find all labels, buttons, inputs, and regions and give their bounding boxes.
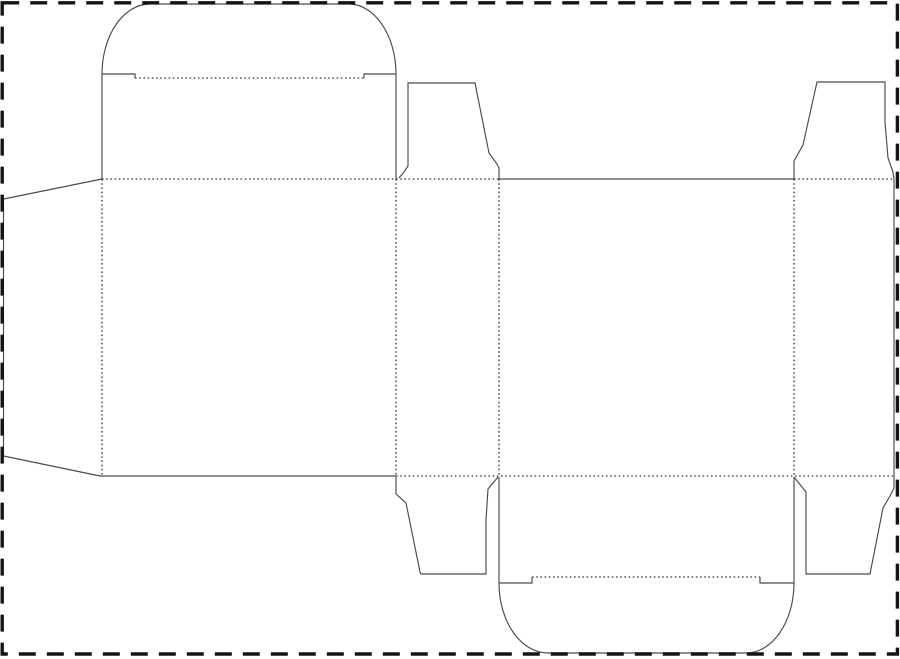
fold-lines <box>102 78 893 577</box>
artboard-dashed-border <box>2 3 897 654</box>
box-dieline-drawing <box>0 0 900 659</box>
top-tuck-notch-right <box>364 74 396 78</box>
top-dust-flap-right-outline <box>794 82 894 179</box>
dieline-canvas <box>0 0 900 659</box>
top-tuck-notch-left <box>102 74 135 78</box>
bottom-dust-flap-left-outline <box>396 477 498 574</box>
top-dust-flap-left-outline <box>399 83 499 179</box>
artboard-border-group <box>2 3 897 654</box>
top-tuck-flap-outline <box>102 4 396 179</box>
glue-flap-outline <box>4 179 103 476</box>
bottom-tuck-notch-right <box>760 577 794 583</box>
cut-lines <box>4 4 895 653</box>
bottom-tuck-flap-outline <box>499 477 794 653</box>
bottom-dust-flap-right-outline <box>794 477 894 574</box>
bottom-tuck-notch-left <box>499 577 532 583</box>
